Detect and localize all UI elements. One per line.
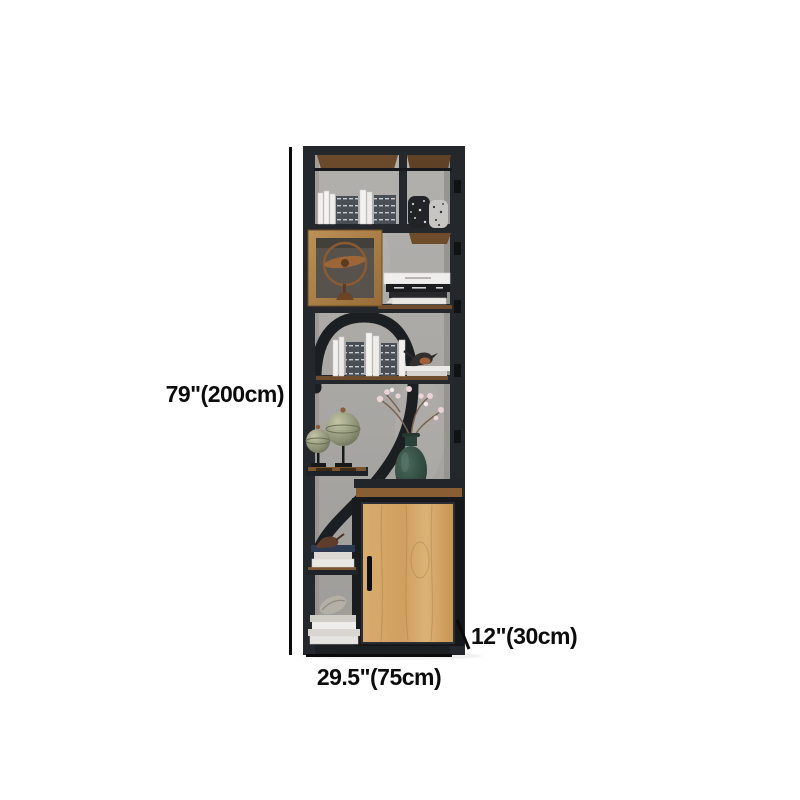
height-dimension-label: 79"(200cm): [166, 383, 284, 406]
stacked-books-mid-right: [384, 273, 450, 304]
cabinet-door: [362, 503, 454, 643]
product-dimension-image: 79"(200cm) 29.5"(75cm) 12"(30cm): [0, 0, 800, 800]
width-dimension-label: 29.5"(75cm): [317, 666, 441, 689]
height-dimension-line: [289, 147, 292, 655]
cabinet: [352, 479, 464, 646]
cabinet-handle: [367, 556, 372, 591]
depth-dimension-label: 12"(30cm): [471, 625, 577, 648]
globe-shelf: [306, 467, 368, 476]
speckled-vases: [408, 196, 448, 228]
width-dimension-line: [306, 654, 452, 657]
display-cube-gyroscope: [308, 230, 382, 306]
